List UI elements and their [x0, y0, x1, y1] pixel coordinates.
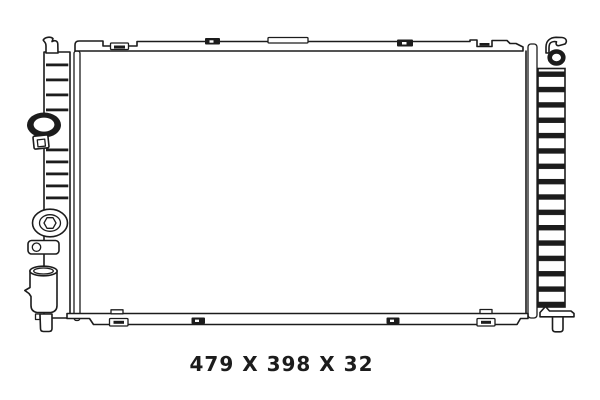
- bottom-right-wing-bracket: [540, 307, 574, 317]
- radiator-drawing: [0, 0, 600, 400]
- top-clip-left: [205, 38, 220, 45]
- product-diagram: [0, 0, 600, 400]
- right-tank: [528, 37, 566, 318]
- bottom-lip-right: [480, 310, 492, 314]
- drain-plug: [33, 209, 68, 237]
- hose-ring: [550, 52, 564, 64]
- right-side-channel: [528, 44, 537, 318]
- right-tank-ribs: [538, 69, 565, 308]
- bottom-frame: [67, 307, 574, 332]
- bottom-clip-right: [387, 318, 400, 325]
- lower-mount-pin: [40, 314, 52, 332]
- dimensions-caption: 479 X 398 X 32: [0, 352, 563, 376]
- top-frame: [75, 38, 523, 52]
- top-bracket-right-slot: [480, 43, 490, 46]
- bottom-right-mount-pin: [553, 317, 564, 332]
- top-mount-tab-center: [268, 38, 308, 44]
- left-side-channel: [74, 51, 80, 321]
- bottom-clip-left: [192, 318, 206, 325]
- lower-hose-stub: [25, 266, 57, 331]
- left-tank-top-hook: [43, 37, 58, 53]
- bottom-lip-left: [111, 310, 123, 314]
- mount-tab-with-hole: [28, 241, 59, 255]
- top-clip-right: [397, 40, 413, 47]
